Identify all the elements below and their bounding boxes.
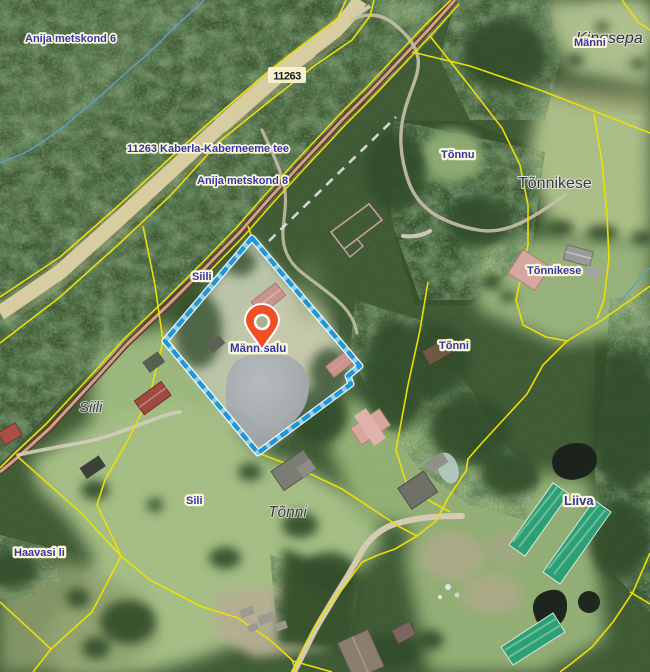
svg-text:Tõnni: Tõnni: [268, 504, 307, 521]
svg-text:Haavasi li: Haavasi li: [14, 547, 65, 559]
svg-text:Siili: Siili: [79, 399, 103, 416]
svg-text:Tõnnikese: Tõnnikese: [527, 265, 581, 277]
svg-text:Liiva: Liiva: [564, 493, 594, 508]
svg-text:11263 Kaberla-Kaberneeme tee: 11263 Kaberla-Kaberneeme tee: [127, 143, 289, 155]
svg-text:Anija metskond 6: Anija metskond 6: [25, 33, 116, 45]
svg-text:Tõnnikese: Tõnnikese: [518, 175, 592, 192]
svg-text:Siili: Siili: [192, 271, 212, 283]
svg-text:Männi: Männi: [574, 37, 606, 49]
svg-text:Anija metskond 8: Anija metskond 8: [197, 175, 288, 187]
svg-text:Sili: Sili: [186, 495, 203, 507]
svg-text:11263: 11263: [273, 71, 301, 83]
svg-text:Tõnni: Tõnni: [439, 340, 469, 352]
svg-text:Tõnnu: Tõnnu: [441, 149, 475, 161]
